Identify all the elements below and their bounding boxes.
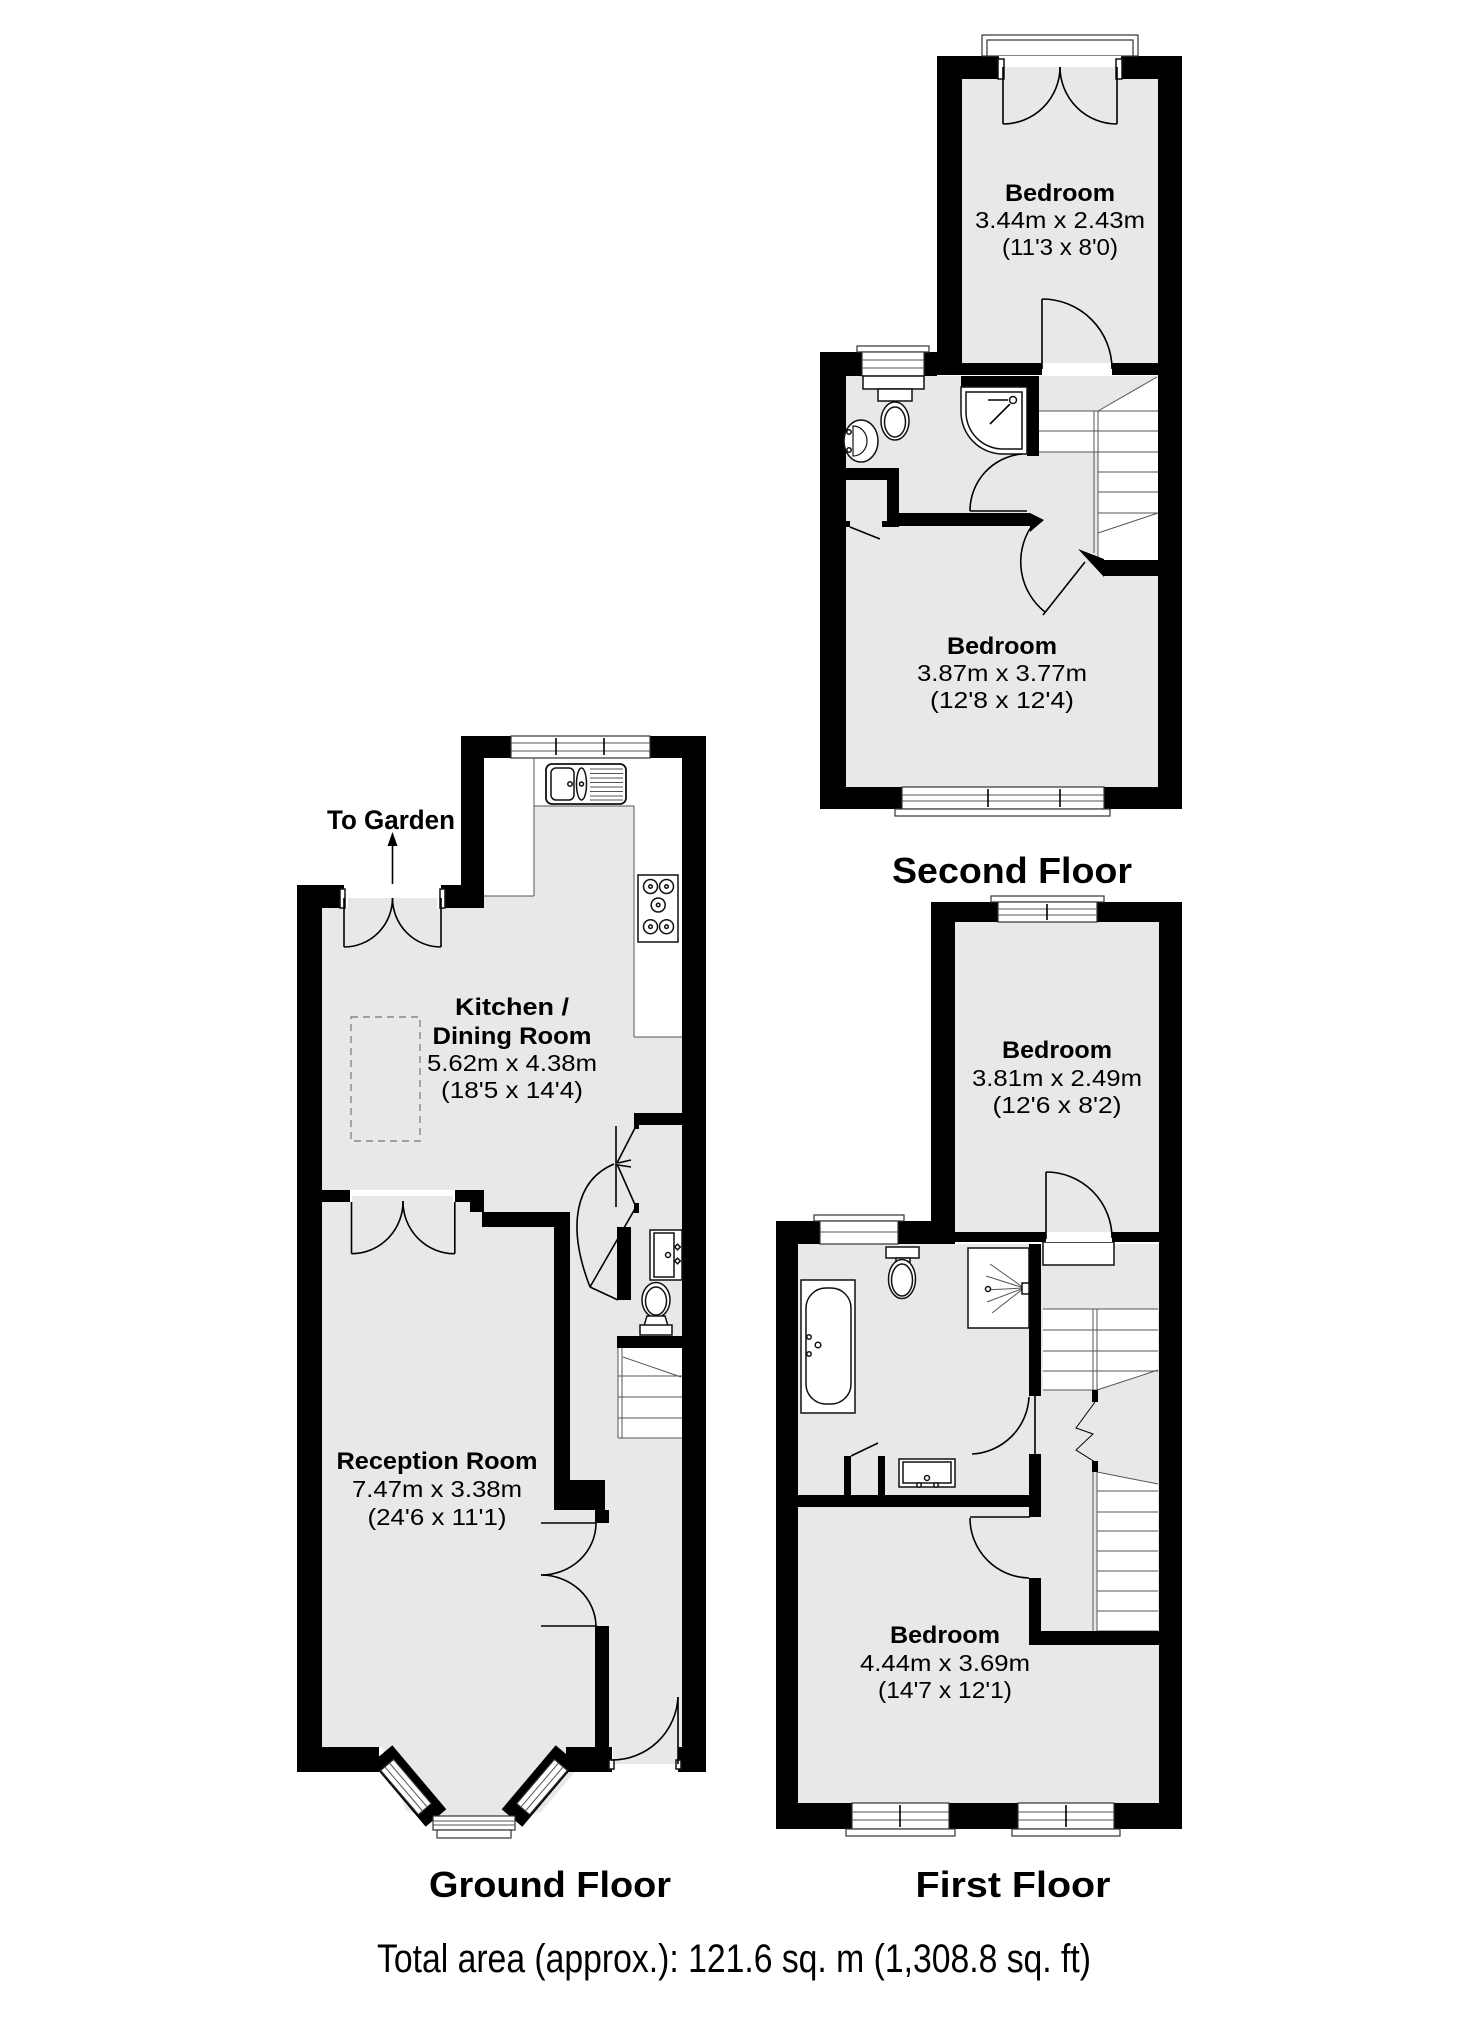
svg-text:Second Floor: Second Floor [892,850,1132,891]
svg-text:5.62m x 4.38m: 5.62m x 4.38m [427,1050,597,1076]
svg-text:(11'3 x 8'0): (11'3 x 8'0) [1002,234,1118,260]
svg-text:(18'5 x 14'4): (18'5 x 14'4) [441,1077,583,1103]
svg-text:4.44m x 3.69m: 4.44m x 3.69m [860,1650,1030,1676]
svg-text:(14'7 x 12'1): (14'7 x 12'1) [878,1677,1012,1703]
svg-text:Bedroom: Bedroom [890,1622,1000,1649]
svg-text:Bedroom: Bedroom [1005,180,1115,207]
svg-text:To Garden: To Garden [327,805,455,835]
svg-text:(12'6 x 8'2): (12'6 x 8'2) [993,1092,1122,1118]
svg-text:Ground Floor: Ground Floor [429,1864,671,1905]
svg-text:3.44m x 2.43m: 3.44m x 2.43m [975,207,1145,233]
svg-text:3.87m x 3.77m: 3.87m x 3.77m [917,660,1087,686]
svg-text:(12'8 x 12'4): (12'8 x 12'4) [930,687,1074,713]
svg-text:(24'6 x 11'1): (24'6 x 11'1) [368,1504,507,1530]
svg-text:Bedroom: Bedroom [947,633,1057,660]
svg-text:Reception Room: Reception Room [337,1448,538,1475]
svg-text:Total area (approx.): 121.6 sq: Total area (approx.): 121.6 sq. m (1,308… [377,1937,1091,1981]
svg-text:7.47m x 3.38m: 7.47m x 3.38m [352,1476,522,1502]
svg-text:First Floor: First Floor [916,1864,1111,1905]
svg-text:Kitchen /: Kitchen / [455,994,569,1021]
svg-text:3.81m x 2.49m: 3.81m x 2.49m [972,1065,1142,1091]
svg-text:Bedroom: Bedroom [1002,1037,1112,1064]
svg-text:Dining Room: Dining Room [433,1023,592,1050]
